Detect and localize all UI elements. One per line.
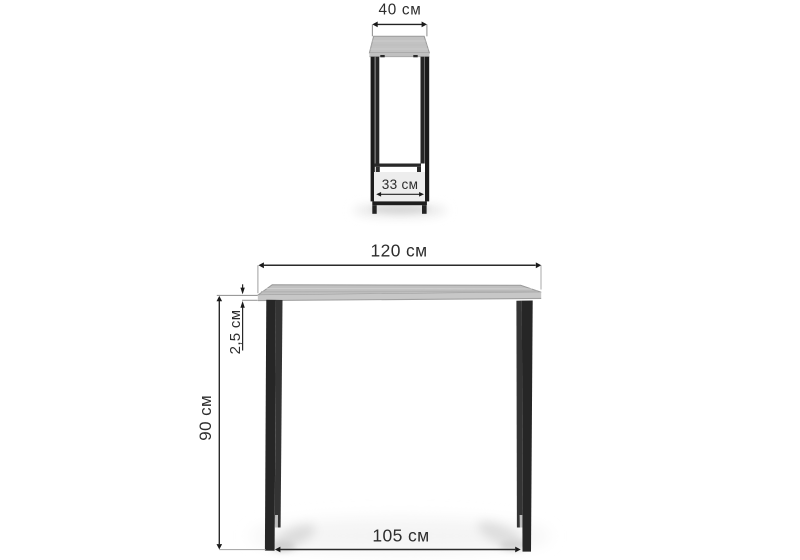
svg-text:105 см: 105 см: [372, 525, 429, 545]
svg-text:90 см: 90 см: [196, 395, 215, 441]
svg-text:40 см: 40 см: [379, 2, 422, 19]
svg-text:120 см: 120 см: [371, 240, 428, 260]
svg-text:2,5 см: 2,5 см: [227, 310, 244, 355]
svg-text:33 см: 33 см: [382, 177, 419, 192]
